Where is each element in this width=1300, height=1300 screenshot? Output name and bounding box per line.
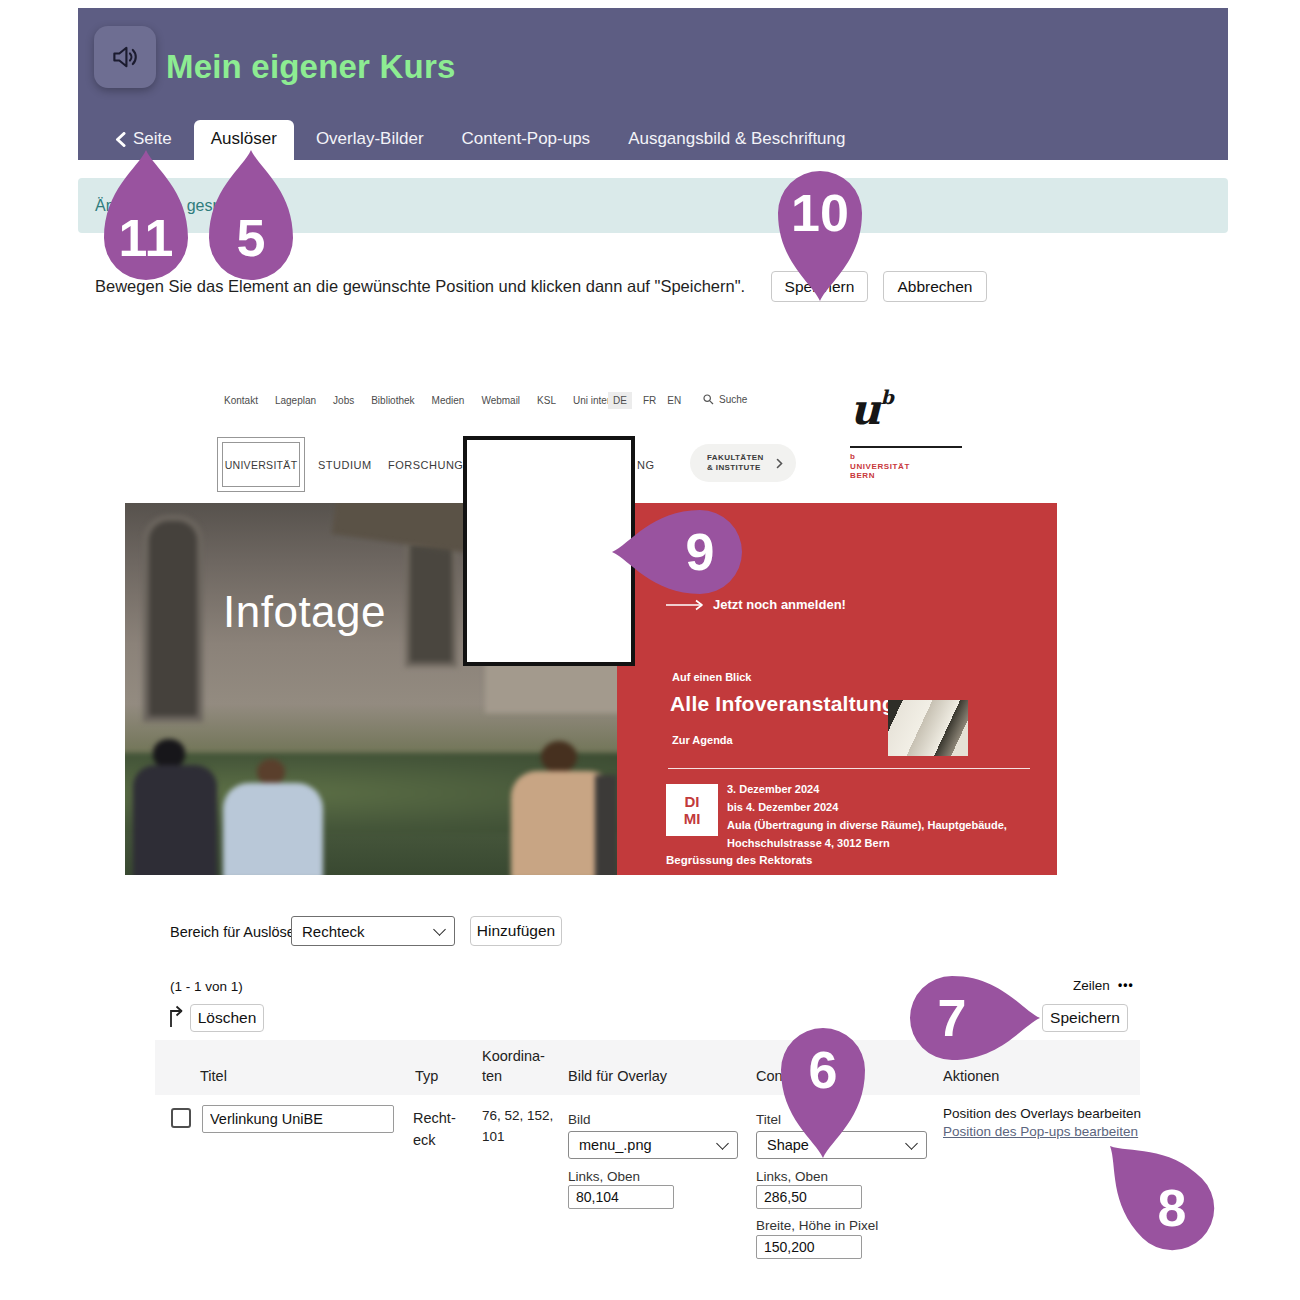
tab-ausloeser[interactable]: Auslöser [194, 120, 294, 160]
tab-back-label: Seite [133, 129, 172, 149]
mainnav-studium[interactable]: STUDIUM [318, 459, 372, 471]
chevron-down-icon [905, 1137, 918, 1150]
instruction-text: Bewegen Sie das Element an die gewünscht… [95, 277, 745, 296]
back-chevron-icon [115, 132, 126, 147]
chevron-right-icon [776, 458, 783, 469]
unibe-logo: ub [850, 385, 894, 434]
building-window-2 [405, 539, 457, 667]
content-pos-input[interactable] [756, 1185, 862, 1209]
content-size-input[interactable] [756, 1235, 862, 1259]
trigger-shape-select[interactable]: Rechteck [291, 916, 455, 946]
logo-u-glyph: u [850, 385, 881, 434]
typ-cell: Recht- eck [413, 1107, 456, 1151]
col-titel: Titel [200, 1066, 227, 1086]
badge-di: DI [685, 793, 700, 810]
hero-title: Infotage [223, 587, 386, 637]
content-pos-label: Links, Oben [756, 1169, 828, 1184]
app-header: Mein eigener Kurs Seite Auslöser Overlay… [78, 8, 1228, 160]
person-right [511, 741, 617, 875]
logo-wordmark: b UNIVERSITÄT BERN [850, 452, 910, 481]
panel-heading: Alle Infoveranstaltungen [670, 692, 920, 716]
edit-overlay-position-link[interactable]: Position des Overlays bearbeiten [943, 1106, 1141, 1121]
tab-overlay-bilder[interactable]: Overlay-Bilder [304, 121, 436, 160]
long-arrow-icon [665, 599, 705, 611]
col-aktionen: Aktionen [943, 1066, 999, 1086]
save-position-button[interactable]: Speichern [771, 271, 868, 302]
tab-bar: Seite Auslöser Overlay-Bilder Content-Po… [78, 122, 1228, 160]
return-arrow-icon [168, 1005, 185, 1029]
search-icon [703, 394, 714, 405]
language-en[interactable]: EN [667, 395, 681, 406]
event-panel: Jetzt noch anmelden! Auf einen Blick All… [617, 503, 1057, 875]
col-bild: Bild für Overlay [568, 1066, 667, 1086]
utility-nav-webmail[interactable]: Webmail [481, 395, 520, 406]
col-koordinaten: Koordina- ten [482, 1046, 545, 1086]
page: Mein eigener Kurs Seite Auslöser Overlay… [0, 0, 1300, 1300]
faculties-line2: & INSTITUTE [707, 463, 764, 473]
utility-nav-bibliothek[interactable]: Bibliothek [371, 395, 414, 406]
mainnav-forschung[interactable]: FORSCHUNG [388, 459, 463, 471]
rows-label: Zeilen [1073, 978, 1110, 993]
content-select[interactable]: Shape [756, 1131, 927, 1159]
notification-text: Änderungen gespeichert [95, 197, 269, 215]
event-details: 3. Dezember 2024 bis 4. Dezember 2024 Au… [727, 780, 1007, 852]
chevron-down-icon [716, 1137, 729, 1150]
mainnav-universitaet-label: UNIVERSITÄT [222, 442, 300, 487]
agenda-link[interactable]: Zur Agenda [672, 734, 733, 746]
page-title: Mein eigener Kurs [166, 48, 455, 86]
brochures-thumbnail [888, 700, 968, 756]
faculties-line1: FAKULTÄTEN [707, 453, 764, 463]
content-titel-label: Titel [756, 1112, 781, 1127]
building-window [143, 515, 203, 722]
mainnav-fragment: NG [637, 459, 655, 471]
add-trigger-button[interactable]: Hinzufügen [470, 916, 562, 946]
content-size-label: Breite, Höhe in Pixel [756, 1218, 878, 1233]
panel-divider [668, 768, 1030, 769]
notification-bar: Änderungen gespeichert [78, 178, 1228, 233]
audio-button[interactable] [94, 26, 156, 88]
svg-text:8: 8 [1158, 1179, 1187, 1237]
svg-text:7: 7 [938, 989, 967, 1047]
language-de[interactable]: DE [608, 392, 632, 409]
person-left [133, 739, 219, 875]
badge-mi: MI [684, 810, 701, 827]
bild-select[interactable]: menu_.png [568, 1131, 738, 1159]
trigger-shape-value: Rechteck [302, 923, 365, 940]
bild-pos-input[interactable] [568, 1185, 674, 1209]
pagination-text: (1 - 1 von 1) [170, 979, 243, 994]
bild-select-value: menu_.png [579, 1137, 652, 1153]
chevron-down-icon [433, 923, 446, 936]
utility-nav-lageplan[interactable]: Lageplan [275, 395, 316, 406]
titel-input[interactable] [202, 1105, 394, 1133]
col-typ: Typ [415, 1066, 438, 1086]
faculties-button[interactable]: FAKULTÄTEN & INSTITUTE [690, 444, 796, 482]
col-content-popup: Content-Pop-up [756, 1066, 858, 1086]
person-center [221, 759, 331, 875]
language-switch: DE FR EN [608, 392, 681, 409]
rektorat-link[interactable]: Begrüssung des Rektorats [666, 854, 812, 866]
language-fr[interactable]: FR [643, 395, 656, 406]
row-checkbox[interactable] [171, 1108, 191, 1128]
logo-b-glyph: b [881, 386, 894, 408]
save-row-button[interactable]: Speichern [1042, 1004, 1128, 1032]
overlay-rectangle[interactable] [463, 436, 635, 666]
register-link[interactable]: Jetzt noch anmelden! [713, 597, 846, 612]
logo-underline [850, 446, 962, 448]
utility-nav: Kontakt Lageplan Jobs Bibliothek Medien … [224, 395, 616, 406]
speaker-icon [108, 40, 142, 74]
site-search[interactable]: Suche [703, 394, 747, 405]
search-label: Suche [719, 394, 747, 405]
panel-kicker: Auf einen Blick [672, 671, 751, 683]
date-badge: DI MI [666, 784, 718, 836]
utility-nav-medien[interactable]: Medien [432, 395, 465, 406]
tab-ausgangsbild[interactable]: Ausgangsbild & Beschriftung [616, 121, 857, 160]
bild-pos-label: Links, Oben [568, 1169, 640, 1184]
utility-nav-kontakt[interactable]: Kontakt [224, 395, 258, 406]
mainnav-universitaet[interactable]: UNIVERSITÄT [217, 437, 305, 492]
utility-nav-ksl[interactable]: KSL [537, 395, 556, 406]
rows-menu-button[interactable]: ••• [1118, 978, 1134, 992]
edit-popup-position-link[interactable]: Position des Pop-ups bearbeiten [943, 1124, 1138, 1139]
trigger-area-label: Bereich für Auslöser [170, 924, 300, 940]
utility-nav-jobs[interactable]: Jobs [333, 395, 354, 406]
cancel-button[interactable]: Abbrechen [883, 271, 987, 302]
delete-button[interactable]: Löschen [190, 1004, 264, 1032]
bild-label: Bild [568, 1112, 591, 1127]
tab-content-popups[interactable]: Content-Pop-ups [450, 121, 603, 160]
tab-back-seite[interactable]: Seite [115, 121, 184, 160]
content-select-value: Shape [767, 1137, 809, 1153]
koordinaten-cell: 76, 52, 152, 101 [482, 1105, 553, 1147]
